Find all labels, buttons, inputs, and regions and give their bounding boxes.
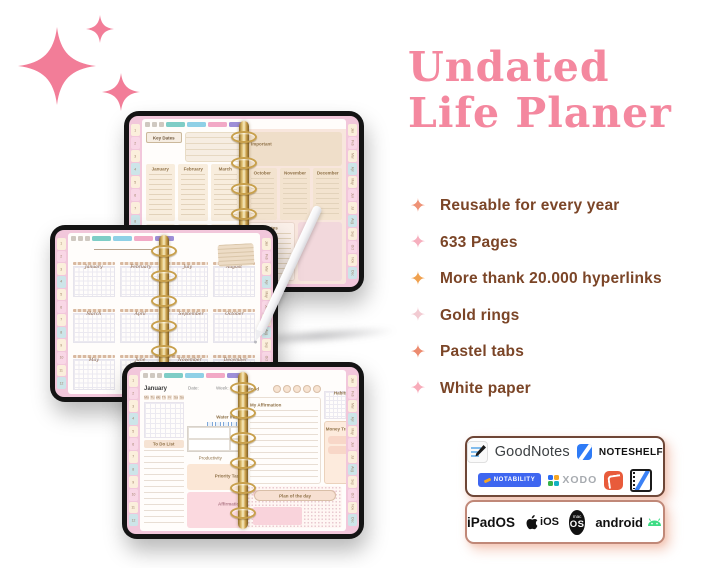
pastel-tab: Jul	[348, 451, 357, 463]
pastel-tab: 7	[129, 451, 138, 463]
sparkle-large-icon	[18, 27, 96, 105]
feature-label: Gold rings	[440, 307, 520, 325]
pastel-tab: Sep	[262, 339, 271, 351]
apps-row-1: GoodNotes NOTESHELF	[467, 438, 663, 466]
feature-item: ✦ More thank 20.000 hyperlinks	[410, 261, 710, 298]
toolbar-icon	[152, 122, 157, 127]
notability-label: NOTABILITY	[494, 477, 536, 483]
gold-ring	[230, 407, 256, 419]
toolbar-icon	[71, 236, 76, 241]
pastel-tab: 6	[131, 189, 140, 201]
ios-group: iOS	[525, 515, 559, 530]
collanote-icon	[630, 469, 652, 492]
daily-month-label: January	[144, 385, 167, 392]
macos-label: OS	[570, 520, 585, 530]
month-box: January	[146, 164, 175, 221]
toolbar-icon	[85, 236, 90, 241]
pastel-tab: Aug	[348, 215, 357, 227]
goodnotes-icon	[467, 441, 488, 463]
noteshelf-label: NOTESHELF	[599, 447, 663, 458]
tracker-grid	[144, 402, 184, 438]
gold-ring	[231, 183, 257, 195]
xodo-mark-icon	[548, 475, 559, 486]
pink-sticker	[268, 507, 302, 525]
nav-tab-chip	[164, 373, 183, 378]
pastel-tab: 10	[129, 489, 138, 501]
feature-label: White paper	[440, 380, 531, 398]
android-robot-icon	[646, 516, 663, 528]
pastel-tab: 11	[129, 502, 138, 514]
pastel-tab: 4	[129, 413, 138, 425]
gold-ring	[230, 482, 256, 494]
toolbar-icon	[78, 236, 83, 241]
money-out-field	[328, 446, 346, 454]
pastel-tab: 11	[57, 365, 66, 377]
nav-tab-chip	[185, 373, 204, 378]
daily-right-page: Mood My Affirmation Habits	[243, 380, 346, 531]
pastel-tab: Jan	[348, 375, 357, 387]
pastel-tab: 12	[57, 377, 66, 389]
weekday-cell: Sa	[173, 395, 178, 400]
gold-ring	[151, 345, 177, 357]
tablet-daily-page: 123456789101112 JanFebMarAprMayJunJulAug…	[122, 362, 364, 539]
weekday-cell: Su	[179, 395, 184, 400]
pastel-tab: 10	[57, 352, 66, 364]
toolbar-icon	[150, 373, 155, 378]
feature-item: ✦ White paper	[410, 371, 710, 408]
important-box: Important	[248, 132, 342, 166]
pastel-tab: May	[348, 426, 357, 438]
tablet3-screen: 123456789101112 JanFebMarAprMayJunJulAug…	[127, 367, 359, 534]
compatible-os-panel: iPadOS iOS mac OS android	[465, 500, 665, 544]
notability-pen-icon	[483, 477, 491, 483]
todo-lines	[144, 450, 184, 528]
feature-item: ✦ Gold rings	[410, 298, 710, 335]
gold-ring	[151, 320, 177, 332]
page-title: Undated Life Planer	[408, 44, 708, 136]
pastel-tab: Feb	[348, 388, 357, 400]
pastel-tab: 2	[131, 137, 140, 149]
money-tracker-box: Money Tracker	[324, 421, 346, 484]
pastel-tab: Sep	[348, 476, 357, 488]
gold-ring	[231, 208, 257, 220]
pastel-tab: 8	[57, 327, 66, 339]
nav-tab-chip	[208, 122, 227, 127]
weekday-cell: We	[156, 395, 161, 400]
pastel-tab: May	[348, 176, 357, 188]
gold-ring	[151, 295, 177, 307]
goodnotes-label: GoodNotes	[495, 444, 570, 460]
plan-of-day-area: Plan of the day	[247, 486, 342, 528]
feature-item: ✦ Reusable for every year	[410, 188, 710, 225]
sparkle-small-icon	[86, 15, 114, 43]
pastel-tab: Jun	[348, 438, 357, 450]
sparkle-bullet-icon: ✦	[410, 231, 440, 254]
pastel-tab: Sep	[348, 228, 357, 240]
pastel-tab: Jun	[348, 189, 357, 201]
key-dates-chip: Key Dates	[146, 132, 182, 143]
my-affirmation-box: My Affirmation	[247, 397, 321, 484]
mini-calendar: January	[72, 254, 116, 298]
nav-tab-chip	[134, 236, 153, 241]
mini-calendar: May	[72, 347, 116, 391]
pastel-tab: 4	[57, 276, 66, 288]
nav-tab-chip	[113, 236, 132, 241]
sparkle-medium-icon	[102, 73, 140, 111]
mood-tracker: Mood	[247, 383, 321, 395]
pastel-tab: Oct	[348, 489, 357, 501]
daily-left-page: January Date: Week: MoTuWeThFrSaSu To Do…	[140, 380, 243, 531]
gold-ring	[151, 245, 177, 257]
android-group: android	[595, 515, 663, 530]
pastel-tab: 6	[57, 301, 66, 313]
toolbar-icon	[143, 373, 148, 378]
title-line-1: Undated	[408, 44, 708, 90]
pastel-tab: 4	[131, 163, 140, 175]
feature-label: Pastel tabs	[440, 343, 524, 361]
nav-tab-chip	[92, 236, 111, 241]
notability-badge: NOTABILITY	[478, 473, 542, 487]
nav-tab-chip	[166, 122, 185, 127]
noteshelf-icon	[577, 444, 592, 460]
apps-row-2: NOTABILITY XODO	[467, 466, 663, 494]
xodo-label: XODO	[562, 474, 597, 486]
macos-icon: mac OS	[569, 510, 585, 535]
pastel-tab: Nov	[348, 254, 357, 266]
pastel-tab: 9	[129, 476, 138, 488]
pastel-tab: Aug	[348, 464, 357, 476]
weekday-cell: Th	[162, 395, 167, 400]
weekday-cell: Mo	[144, 395, 149, 400]
pastel-tab: Feb	[262, 251, 271, 263]
sparkle-bullet-icon: ✦	[410, 268, 440, 291]
pastel-side-tabs-right: JanFebMarAprMayJunJulAugSepOctNovDec	[348, 375, 357, 526]
pastel-tab: 7	[131, 202, 140, 214]
pastel-tab: Dec	[348, 514, 357, 526]
habits-label: Habits	[324, 383, 346, 389]
ipados-label: iPadOS	[467, 515, 515, 530]
pastel-tab: 5	[129, 426, 138, 438]
feature-label: Reusable for every year	[440, 197, 620, 215]
compatible-apps-panel: GoodNotes NOTESHELF NOTABILITY XODO	[465, 436, 665, 497]
pastel-tab: 9	[57, 339, 66, 351]
apple-logo-icon	[525, 515, 538, 530]
weekday-cell: Tu	[150, 395, 155, 400]
pastel-side-tabs-left: 123456789101112	[57, 238, 66, 389]
pastel-tab: Oct	[348, 241, 357, 253]
pastel-tab: 1	[131, 124, 140, 136]
weekday-cell: Fr	[167, 395, 172, 400]
pastel-tab: 3	[131, 150, 140, 162]
sparkle-bullet-icon: ✦	[410, 377, 440, 400]
pastel-tab: 3	[129, 400, 138, 412]
yearly-right-months: OctoberNovemberDecember	[248, 168, 342, 220]
sparkle-bullet-icon: ✦	[410, 304, 440, 327]
pastel-tab: 5	[57, 289, 66, 301]
month-box: February	[178, 164, 207, 221]
pastel-tab: 7	[57, 314, 66, 326]
gold-ring	[230, 457, 256, 469]
toolbar-icon	[159, 122, 164, 127]
daily-week-label: Week:	[216, 386, 229, 391]
pastel-tab: 12	[129, 514, 138, 526]
title-line-2: Life Planer	[408, 90, 708, 136]
money-in-field	[328, 436, 346, 444]
pastel-tab: Apr	[262, 276, 271, 288]
pastel-tab: 5	[131, 176, 140, 188]
gold-binder-rings	[238, 372, 248, 529]
sticky-note	[217, 243, 254, 267]
todo-list-bar: To Do List	[144, 440, 184, 448]
feature-label: More thank 20.000 hyperlinks	[440, 270, 662, 288]
pastel-tab: Jan	[348, 124, 357, 136]
pastel-tab: 2	[129, 388, 138, 400]
os-row: iPadOS iOS mac OS android	[467, 502, 663, 542]
feature-item: ✦ Pastel tabs	[410, 334, 710, 371]
pastel-tab: Mar	[348, 150, 357, 162]
gold-ring	[151, 270, 177, 282]
month-box: November	[280, 168, 309, 220]
marketing-canvas: Undated Life Planer ✦ Reusable for every…	[0, 0, 713, 568]
flexcil-icon	[604, 471, 623, 490]
android-label: android	[595, 515, 643, 530]
toolbar-icon	[157, 373, 162, 378]
pastel-tab: Apr	[348, 413, 357, 425]
pastel-tab: 3	[57, 263, 66, 275]
pastel-tab: Dec	[348, 267, 357, 279]
pastel-side-tabs-right: JanFebMarAprMayJunJulAugSepOctNovDec	[348, 124, 357, 279]
pastel-tab: 8	[129, 464, 138, 476]
nav-tab-chip	[187, 122, 206, 127]
pastel-tab: Jan	[262, 238, 271, 250]
pastel-tab: 6	[129, 438, 138, 450]
gold-ring	[230, 432, 256, 444]
pastel-tab: 2	[57, 251, 66, 263]
gold-ring	[231, 157, 257, 169]
pastel-tab: Jul	[348, 202, 357, 214]
weekday-strip: MoTuWeThFrSaSu	[144, 395, 184, 400]
mini-calendar: October	[212, 301, 256, 345]
nav-tab-chip	[206, 373, 225, 378]
daily-date-label: Date:	[188, 386, 199, 391]
xodo-logo: XODO	[548, 474, 597, 486]
pastel-tab: Feb	[348, 137, 357, 149]
pastel-tab: Mar	[262, 263, 271, 275]
ios-label: iOS	[540, 516, 559, 528]
mini-calendar: March	[72, 301, 116, 345]
header-line	[94, 249, 154, 250]
feature-list: ✦ Reusable for every year ✦ 633 Pages ✦ …	[410, 188, 710, 407]
feature-item: ✦ 633 Pages	[410, 225, 710, 262]
feature-label: 633 Pages	[440, 234, 518, 252]
sparkle-bullet-icon: ✦	[410, 341, 440, 364]
gold-ring	[231, 131, 257, 143]
gold-ring	[230, 507, 256, 519]
pastel-side-tabs-left: 123456789101112	[129, 375, 138, 526]
pastel-tab: 1	[129, 375, 138, 387]
pastel-tab: Mar	[348, 400, 357, 412]
sparkle-bullet-icon: ✦	[410, 195, 440, 218]
toolbar-icon	[145, 122, 150, 127]
plan-of-day-pill: Plan of the day	[253, 490, 335, 501]
gold-ring	[230, 382, 256, 394]
pastel-tab: Nov	[348, 502, 357, 514]
pastel-tab: Apr	[348, 163, 357, 175]
pastel-tab: 1	[57, 238, 66, 250]
